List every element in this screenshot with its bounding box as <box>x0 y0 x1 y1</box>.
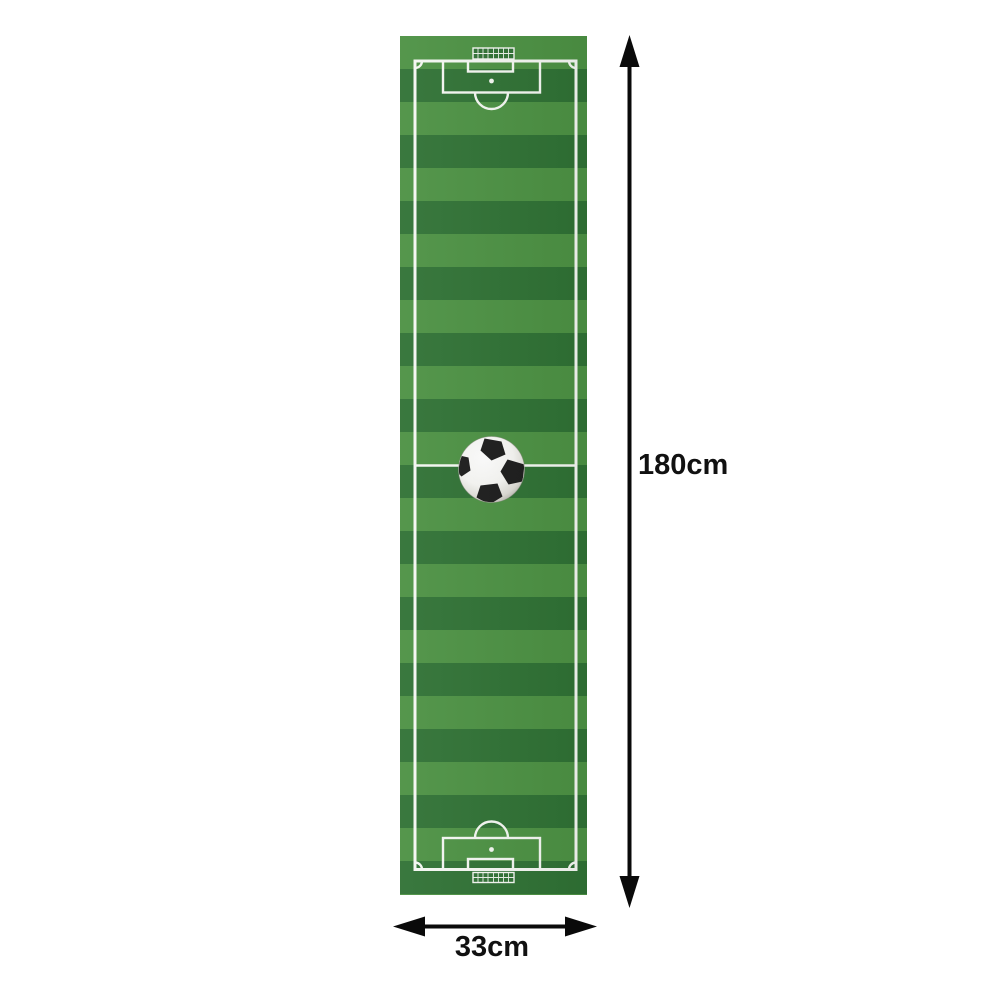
width-dimension-label: 33cm <box>447 933 537 962</box>
goal-net-top-icon <box>473 48 514 59</box>
penalty-arc-top <box>475 93 508 110</box>
height-dimension-label: 180cm <box>638 451 728 480</box>
penalty-arc-bottom <box>475 822 508 838</box>
goal-net-bottom-icon <box>473 873 514 883</box>
penalty-spot-top <box>489 79 494 84</box>
soccer-field-rug <box>400 36 587 895</box>
product-image: 180cm 33cm <box>0 0 1000 1000</box>
penalty-area-bottom <box>443 822 540 870</box>
soccer-ball-icon <box>452 437 525 505</box>
penalty-area-top <box>443 61 540 109</box>
field-markings <box>400 36 587 895</box>
penalty-spot-bottom <box>489 847 494 852</box>
height-arrow-icon <box>620 35 640 908</box>
